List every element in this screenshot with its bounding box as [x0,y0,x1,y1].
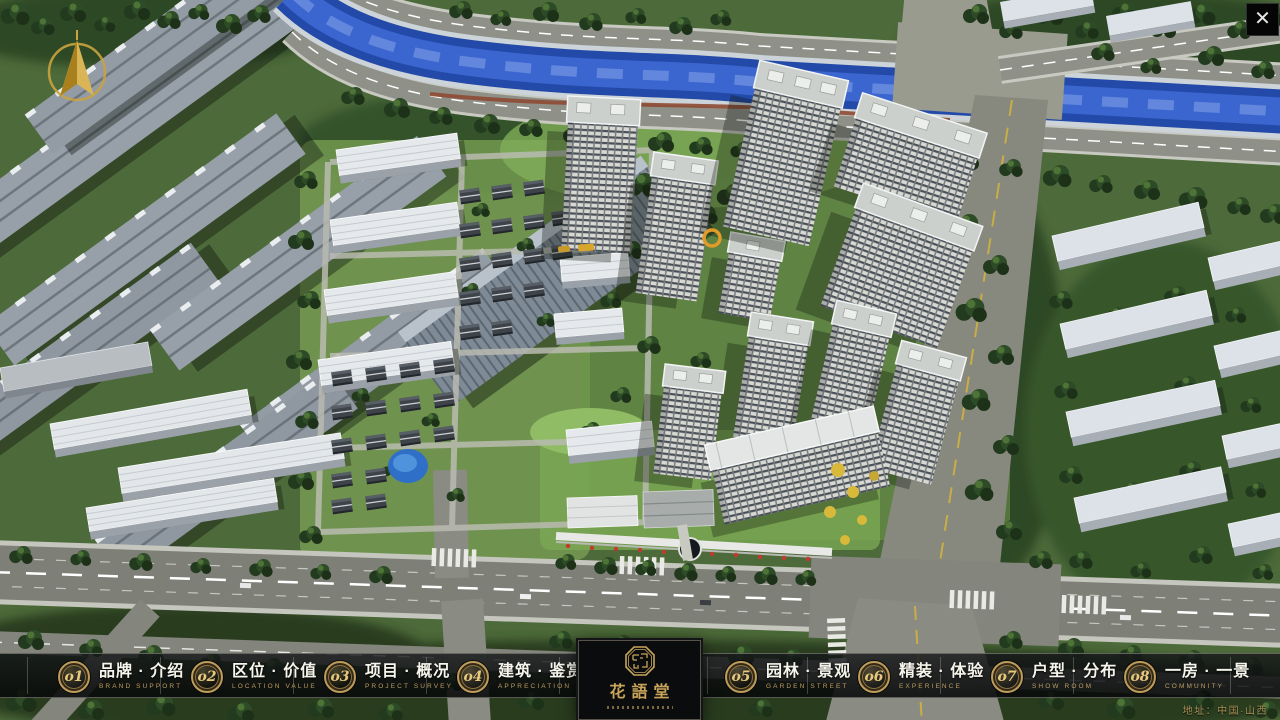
nav-item-sublabel: PROJECT SURVEY [365,683,453,690]
nav-item-label: 区位 · 价值 [232,663,317,680]
nav-item-label: 一房 · 一景 [1165,663,1250,680]
nav-item-sublabel: COMMUNITY [1165,683,1250,690]
nav-item-label: 项目 · 概况 [365,663,453,680]
nav-item-sublabel: BRAND SUPPORT [99,683,184,690]
nav-item-label: 户型 · 分布 [1032,663,1117,680]
nav-item-location[interactable]: o2 区位 · 价值 LOCATION VALUE [191,654,317,699]
nav-item-experience[interactable]: o6 精装 · 体验 EXPERIENCE [858,654,984,699]
nav-badge-icon: o3 [324,661,356,693]
brand-name: 花語堂 [603,678,675,702]
project-address: 地址：中国·山西 [1078,702,1268,717]
masterplan-render [0,0,1280,720]
nav-item-project[interactable]: o3 项目 · 概况 PROJECT SURVEY [324,654,453,699]
nav-item-sublabel: GARDEN STREET [766,683,851,690]
nav-item-label: 品牌 · 介绍 [99,663,184,680]
nav-badge-icon: o5 [725,661,757,693]
brand-seal-icon [625,646,655,676]
close-button[interactable]: ✕ [1246,3,1279,36]
nav-badge-icon: o8 [1124,661,1156,693]
nav-badge-icon: o4 [457,661,489,693]
brand-logo[interactable]: 花語堂 [578,640,701,720]
brand-caption [607,706,673,709]
nav-item-sublabel: SHOW ROOM [1032,683,1117,690]
nav-item-floorplans[interactable]: o7 户型 · 分布 SHOW ROOM [991,654,1117,699]
nav-item-sublabel: APPRECIATION [498,683,583,690]
nav-item-label: 园林 · 景观 [766,663,851,680]
nav-item-label: 建筑 · 鉴赏 [498,663,583,680]
nav-item-architecture[interactable]: o4 建筑 · 鉴赏 APPRECIATION [457,654,583,699]
nav-item-sublabel: EXPERIENCE [899,683,984,690]
sales-presentation-screen: ✕ o1 品牌 · 介绍 BRAND SUPPORT o2 区位 · 价值 LO… [0,0,1280,720]
nav-badge-icon: o7 [991,661,1023,693]
nav-badge-icon: o1 [58,661,90,693]
nav-item-brand[interactable]: o1 品牌 · 介绍 BRAND SUPPORT [58,654,184,699]
nav-item-sublabel: LOCATION VALUE [232,683,317,690]
nav-badge-icon: o6 [858,661,890,693]
nav-item-label: 精装 · 体验 [899,663,984,680]
nav-item-community[interactable]: o8 一房 · 一景 COMMUNITY [1124,654,1250,699]
nav-item-garden[interactable]: o5 园林 · 景观 GARDEN STREET [725,654,851,699]
nav-badge-icon: o2 [191,661,223,693]
